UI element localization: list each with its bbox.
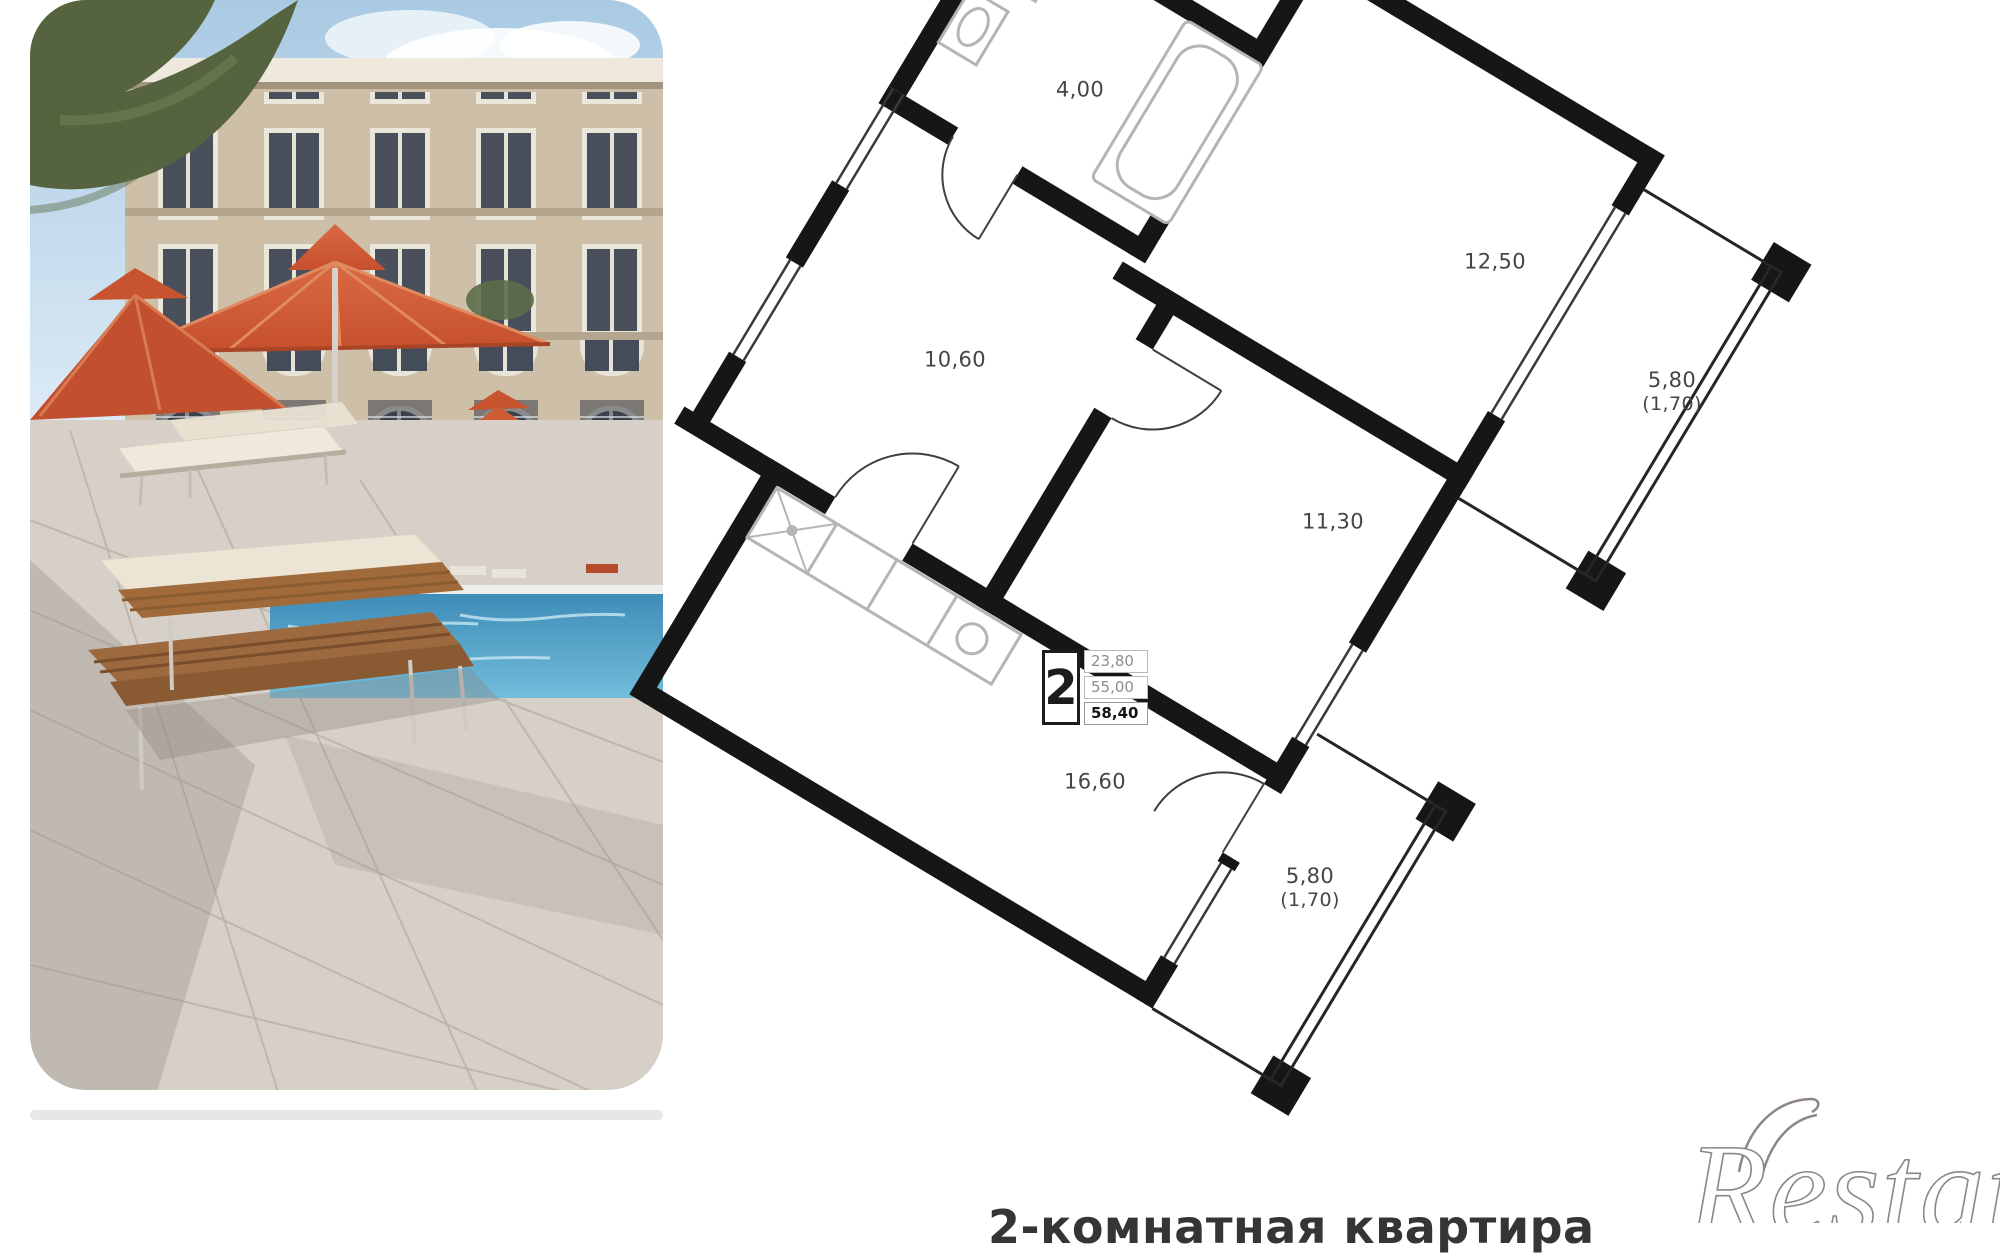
listing-title: 2-комнатная квартира bbox=[988, 1202, 1595, 1253]
room-area-label-bedroom: 12,50 bbox=[1464, 249, 1526, 274]
room-area-label-hallway: 10,60 bbox=[924, 347, 986, 372]
room-area-label-balcony-right: 5,80(1,70) bbox=[1642, 368, 1702, 416]
floor-plan-image bbox=[0, 0, 2000, 1223]
room-area-label-bathroom: 4,00 bbox=[1056, 77, 1104, 102]
area-no-balcony-value: 55,00 bbox=[1084, 676, 1148, 699]
living-area-value: 23,80 bbox=[1084, 650, 1148, 673]
room-area-label-kitchen-living: 16,60 bbox=[1064, 769, 1126, 794]
room-area-label-balcony-bottom: 5,80(1,70) bbox=[1280, 864, 1340, 912]
total-area-value: 58,40 bbox=[1084, 702, 1148, 725]
room-area-label-room: 11,30 bbox=[1302, 509, 1364, 534]
rooms-count: 2 bbox=[1042, 650, 1080, 725]
unit-info-badge: 2 23,80 55,00 58,40 bbox=[1042, 650, 1148, 725]
listing-page: { "photo": { "subject": "courtyard pool … bbox=[0, 0, 2000, 1223]
